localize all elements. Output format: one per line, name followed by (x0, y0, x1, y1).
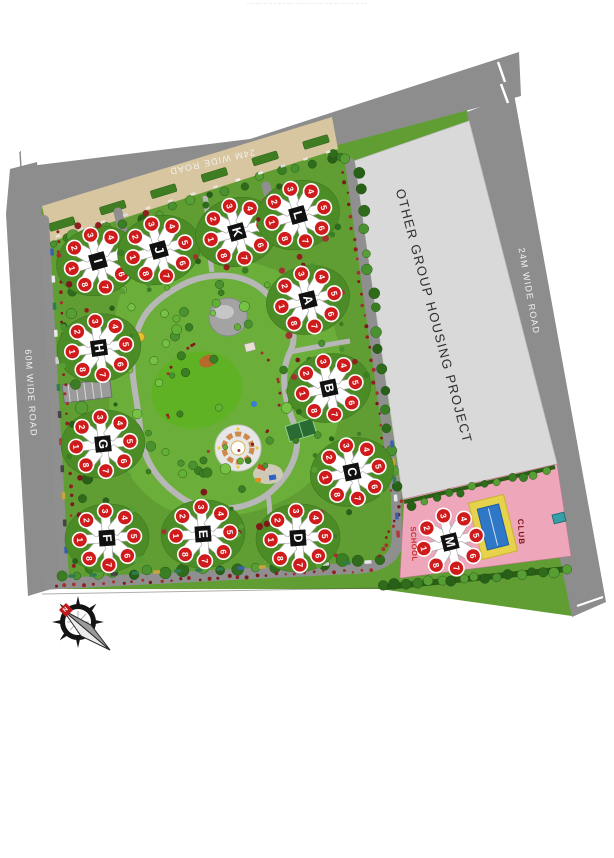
shrub (92, 583, 95, 586)
shrub (72, 564, 76, 568)
tree (369, 288, 380, 299)
tree (407, 502, 416, 511)
fine-print-line: · ··· ····· ···· ··· ·· ······ ···· · ··… (247, 1, 368, 6)
tree (389, 578, 400, 589)
parked-car (392, 476, 396, 483)
shrub (261, 352, 264, 355)
unit-badge-number: 6 (218, 549, 228, 555)
tree (562, 565, 571, 574)
tower-E-unit-3-badge: 3 (193, 499, 209, 515)
shrub (56, 230, 59, 233)
tower-E-unit-5-badge: 5 (222, 524, 238, 540)
unit-badge-number: 5 (320, 533, 330, 539)
unit-badge-number: 4 (311, 515, 321, 521)
tower-E-unit-8-badge: 8 (177, 546, 193, 562)
shrub (123, 582, 126, 585)
shrub (236, 576, 240, 580)
fountain-dot (217, 446, 220, 449)
tree (146, 441, 156, 451)
tree (181, 368, 190, 377)
tree (481, 480, 488, 487)
tower-G-unit-2-badge: 2 (74, 419, 90, 435)
tree (210, 310, 216, 316)
shrub (167, 416, 170, 419)
tree (161, 310, 169, 318)
shrub (170, 580, 172, 582)
tower-F-unit-8-badge: 8 (81, 550, 97, 566)
shrub (69, 484, 73, 488)
shrub (141, 579, 144, 582)
shrub (278, 404, 281, 407)
shrub (397, 505, 400, 508)
tree (457, 490, 465, 498)
shrub (385, 536, 388, 539)
play-item (255, 478, 261, 482)
fountain-plaza (215, 425, 261, 471)
tree (172, 325, 182, 335)
shrub (372, 368, 376, 372)
shrub (360, 293, 363, 296)
unit-badge-number: 5 (225, 529, 235, 535)
shrub (349, 227, 352, 230)
shrub (392, 525, 395, 528)
compass: N (52, 596, 110, 650)
parked-car (396, 530, 400, 537)
tree (215, 404, 222, 411)
shrub (208, 577, 212, 581)
tree (165, 285, 170, 290)
tree (215, 280, 224, 289)
tree (118, 220, 127, 229)
unit-badge-number: 1 (171, 533, 181, 539)
tree (173, 315, 180, 322)
tree (146, 430, 152, 436)
shrub (375, 391, 378, 394)
tree (528, 568, 536, 576)
unit-badge-number: 8 (275, 556, 285, 562)
tree (150, 357, 158, 365)
parked-car (132, 571, 139, 575)
tree (159, 567, 171, 579)
parked-car (90, 573, 97, 577)
tree (549, 568, 560, 579)
shrub (130, 580, 133, 583)
shrub (279, 392, 282, 395)
tower-H-label: H (91, 343, 106, 354)
shrub (55, 585, 58, 588)
tree (207, 192, 213, 198)
tree (168, 202, 176, 210)
tower-D-unit-3-badge: 3 (288, 503, 304, 519)
tree (57, 571, 67, 581)
tree (70, 379, 80, 389)
tree (445, 489, 453, 497)
parked-car (343, 561, 350, 565)
tree (380, 405, 390, 415)
tower-E-unit-7-badge: 7 (197, 553, 213, 569)
tower-E-label: E (196, 529, 211, 538)
tower-D-unit-5-badge: 5 (317, 528, 333, 544)
tree (517, 570, 527, 580)
tree (189, 461, 198, 470)
parked-car (153, 570, 160, 574)
tree (401, 579, 411, 589)
shrub (360, 304, 364, 308)
shrub (369, 568, 373, 572)
tower-G-unit-8-badge: 8 (78, 457, 94, 473)
shrub (265, 430, 268, 433)
shrub (364, 324, 368, 328)
shrub (277, 380, 280, 383)
shrub (68, 472, 72, 476)
shrub (342, 180, 346, 184)
tree (162, 448, 169, 455)
parked-car (58, 411, 62, 418)
shrub (62, 373, 65, 376)
parked-car (60, 465, 64, 472)
tree (539, 568, 549, 578)
unit-badge-number: 7 (200, 558, 210, 564)
unit-badge-number: 4 (216, 511, 226, 517)
tower-F-label: F (100, 534, 115, 543)
shrub (66, 402, 69, 405)
fountain-dot (236, 427, 239, 430)
tree (132, 409, 142, 419)
shrub (207, 450, 210, 453)
tree (218, 290, 224, 296)
tree (293, 437, 299, 443)
tower-D-unit-7-badge: 7 (292, 557, 308, 573)
shrub (375, 402, 378, 405)
shrub (368, 346, 371, 349)
tower-F-unit-6-badge: 6 (119, 548, 135, 564)
tree (266, 437, 274, 445)
tower-G-label: G (96, 438, 111, 449)
shrub (379, 412, 381, 414)
shrub (199, 579, 202, 582)
site-plan-map: · ··· ····· ···· ··· ·· ······ ···· · ··… (0, 0, 614, 858)
tree (155, 379, 163, 387)
parked-car (50, 248, 54, 255)
shrub (149, 581, 152, 584)
shrub (275, 572, 279, 576)
tree (354, 167, 365, 178)
shrub (341, 171, 344, 174)
shrub (256, 574, 260, 578)
shrub (245, 575, 249, 579)
tree (177, 352, 186, 361)
shrub (357, 280, 360, 283)
parked-car (57, 384, 61, 391)
tower-G-unit-7-badge: 7 (98, 463, 114, 479)
tree (314, 432, 321, 439)
shrub (369, 359, 373, 363)
parked-car (259, 565, 266, 569)
tree (66, 308, 77, 319)
tree (519, 473, 527, 481)
tree (359, 205, 370, 216)
tree (543, 467, 551, 475)
tree (210, 355, 218, 363)
shrub (347, 203, 350, 206)
shrub (237, 449, 240, 452)
shrub (65, 413, 67, 415)
shrub (364, 314, 367, 317)
shrub (62, 583, 66, 587)
tree (212, 299, 220, 307)
shrub (82, 583, 86, 587)
shrub (361, 569, 364, 572)
tree (177, 411, 184, 418)
tree (371, 303, 380, 312)
tree (78, 494, 86, 502)
tree (468, 482, 476, 490)
unit-badge-number: 2 (81, 518, 91, 524)
shrub (167, 372, 170, 375)
tree (179, 470, 187, 478)
shrub (400, 499, 404, 503)
tree (421, 498, 428, 505)
tree (492, 573, 501, 582)
shrub (65, 422, 69, 426)
tree (359, 224, 369, 234)
unit-badge-number: 8 (180, 552, 190, 558)
shrub (190, 344, 193, 347)
tower-D-unit-6-badge: 6 (310, 548, 326, 564)
shrub (379, 424, 382, 427)
shrub (352, 571, 354, 573)
shrub (285, 573, 287, 575)
shrub (251, 443, 254, 446)
tree (413, 578, 423, 588)
tower-F-unit-4-badge: 4 (117, 510, 133, 526)
tree (241, 183, 249, 191)
shrub (353, 238, 356, 241)
parked-car (63, 519, 67, 526)
tower-G-unit-1-badge: 1 (68, 439, 84, 455)
tower-F-unit-7-badge: 7 (101, 557, 117, 573)
shrub (371, 381, 375, 385)
tower-D-unit-1-badge: 1 (263, 532, 279, 548)
shrub (390, 489, 392, 491)
tree (377, 364, 387, 374)
tower-D-unit-2-badge: 2 (270, 512, 286, 528)
tree (220, 187, 229, 196)
shrub (60, 301, 63, 304)
shrub (357, 271, 361, 275)
tree (362, 264, 373, 275)
shrub (378, 554, 381, 557)
tower-D-label: D (291, 533, 306, 543)
tree (146, 469, 151, 474)
tower-G-unit-3-badge: 3 (92, 409, 108, 425)
tree (480, 574, 490, 584)
parked-car (195, 568, 202, 572)
shrub (179, 577, 182, 580)
tree (381, 386, 390, 395)
unit-badge-number: 2 (272, 518, 282, 524)
shrub (293, 573, 296, 576)
shrub (380, 437, 383, 440)
unit-badge-number: 6 (313, 553, 323, 559)
parked-car (364, 560, 371, 564)
parked-car (68, 574, 75, 578)
shrub (61, 312, 64, 315)
parked-car (390, 440, 394, 447)
shrub (366, 335, 369, 338)
unit-badge-number: 5 (129, 533, 139, 539)
tree (308, 160, 316, 168)
shrub (393, 520, 396, 523)
tree (237, 458, 243, 464)
tree (238, 486, 245, 493)
tower-D-unit-8-badge: 8 (272, 550, 288, 566)
shrub (332, 570, 336, 574)
tree (470, 573, 478, 581)
tree (239, 302, 249, 312)
unit-badge-number: 3 (291, 508, 301, 514)
shrub (63, 392, 66, 395)
tree (264, 282, 270, 288)
shrub (161, 580, 164, 583)
shrub (186, 347, 189, 350)
tree (251, 563, 260, 572)
shrub (387, 530, 390, 533)
tower-D-unit-4-badge: 4 (308, 510, 324, 526)
tree (142, 565, 152, 575)
tree (363, 250, 371, 258)
site-plan-page: · ··· ····· ···· ··· ·· ······ ···· · ··… (0, 0, 614, 858)
tower-F-unit-3-badge: 3 (97, 503, 113, 519)
tree (200, 457, 207, 464)
parked-car (395, 512, 399, 519)
tree (50, 241, 57, 248)
tree (169, 373, 175, 379)
tower-F-unit-5-badge: 5 (126, 528, 142, 544)
fountain-dot (255, 446, 258, 449)
tree (263, 463, 268, 468)
tower-E-unit-2-badge: 2 (175, 508, 191, 524)
tree (318, 340, 325, 347)
shrub (70, 494, 73, 497)
tree (185, 195, 195, 205)
shrub (313, 570, 316, 573)
tree (244, 320, 252, 328)
shrub (267, 359, 270, 362)
shrub (265, 574, 268, 577)
unit-badge-number: 3 (100, 508, 110, 514)
shrub (187, 576, 191, 580)
unit-badge-number: 2 (177, 514, 187, 520)
tree (373, 344, 383, 354)
school-label: SCHOOL (409, 526, 420, 562)
shrub (64, 383, 67, 386)
tree (75, 401, 88, 414)
shrub (322, 570, 324, 572)
tree (220, 464, 231, 475)
tree (529, 471, 537, 479)
shrub (381, 547, 385, 551)
shrub (70, 502, 74, 506)
unit-badge-number: 4 (120, 515, 130, 521)
tree (291, 164, 299, 172)
tree (162, 340, 170, 348)
unit-badge-number: 7 (295, 562, 305, 568)
tree (234, 324, 241, 331)
fountain-center (231, 441, 245, 455)
parked-car (51, 276, 55, 283)
tower-G-unit-4-badge: 4 (112, 415, 128, 431)
tree (371, 327, 382, 338)
unit-badge-number: 7 (104, 562, 114, 568)
parked-car (62, 492, 66, 499)
tower-G-unit-6-badge: 6 (116, 453, 132, 469)
tree (378, 581, 388, 591)
shrub (72, 583, 76, 587)
tower-F-unit-1-badge: 1 (72, 532, 88, 548)
tree (223, 445, 228, 450)
shrub (343, 569, 346, 572)
road-marker-pole (20, 152, 21, 168)
shrub (354, 247, 358, 251)
parked-car (394, 494, 398, 501)
tree (356, 184, 366, 194)
parked-car (174, 569, 181, 573)
shrub (170, 366, 173, 369)
unit-badge-number: 6 (122, 553, 132, 559)
play-slide (251, 401, 257, 407)
fountain-dot (236, 465, 239, 468)
tree (423, 576, 433, 586)
shrub (347, 192, 349, 194)
tree (460, 575, 469, 584)
unit-badge-number: 3 (196, 504, 206, 510)
tree (508, 473, 516, 481)
shrub (349, 215, 353, 219)
tree (179, 307, 188, 316)
tower-G-unit-5-badge: 5 (122, 433, 138, 449)
shrub (384, 543, 388, 547)
shrub (102, 582, 105, 585)
tree (280, 366, 288, 374)
tree (202, 468, 212, 478)
parked-car (53, 303, 57, 310)
parked-car (238, 566, 245, 570)
tower-E-unit-6-badge: 6 (215, 544, 231, 560)
parked-car (54, 330, 58, 337)
tree (128, 304, 135, 311)
tree (245, 458, 251, 464)
unit-badge-number: 1 (75, 537, 85, 543)
unit-badge-number: 1 (266, 537, 276, 543)
unit-badge-number: 8 (84, 556, 94, 562)
shrub (216, 577, 219, 580)
shrub (112, 580, 115, 583)
parked-car (216, 567, 223, 571)
tower-E-unit-1-badge: 1 (168, 528, 184, 544)
tree (493, 479, 500, 486)
shrub (70, 514, 73, 517)
tree (340, 154, 350, 164)
tree (446, 576, 456, 586)
tree (503, 569, 513, 579)
tower-E-unit-4-badge: 4 (213, 506, 229, 522)
tree (352, 555, 363, 566)
shrub (356, 258, 359, 261)
tower-F-unit-2-badge: 2 (79, 512, 95, 528)
club-label: CLUB (516, 519, 526, 546)
tree (178, 460, 185, 467)
